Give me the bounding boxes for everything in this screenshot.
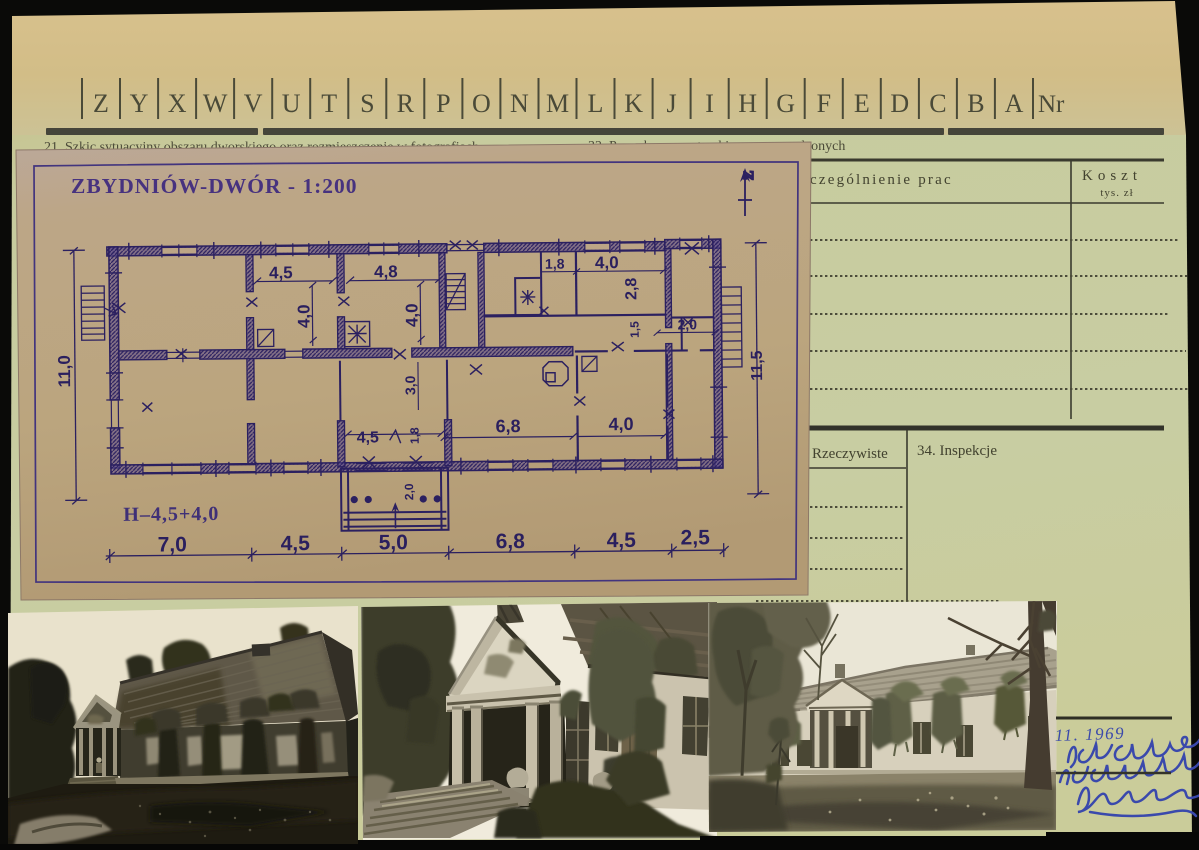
svg-text:1,5: 1,5 (628, 321, 642, 338)
svg-text:T: T (321, 89, 337, 118)
svg-text:4,8: 4,8 (374, 262, 398, 281)
svg-text:11,0: 11,0 (55, 355, 74, 387)
svg-text:H: H (738, 89, 757, 118)
svg-text:2,5: 2,5 (681, 526, 711, 549)
svg-text:K: K (624, 89, 643, 118)
svg-text:Y: Y (130, 89, 149, 118)
svg-text:N: N (510, 89, 529, 118)
svg-text:P: P (436, 89, 450, 118)
svg-text:I: I (705, 89, 714, 118)
svg-text:tys. zł: tys. zł (1100, 187, 1133, 199)
svg-text:4,0: 4,0 (595, 253, 619, 272)
svg-text:3,0: 3,0 (402, 375, 418, 395)
svg-text:4,5: 4,5 (281, 532, 311, 555)
svg-text:F: F (817, 89, 831, 118)
svg-text:1,8: 1,8 (408, 427, 422, 444)
svg-text:ZBYDNIÓW-DWÓR - 1:200: ZBYDNIÓW-DWÓR - 1:200 (71, 174, 358, 198)
svg-text:34. Inspekcje: 34. Inspekcje (917, 443, 997, 459)
svg-text:4,5: 4,5 (269, 263, 293, 282)
svg-text:Rzeczywiste: Rzeczywiste (812, 446, 888, 462)
svg-text:Nr: Nr (1038, 91, 1065, 118)
svg-text:B: B (967, 89, 984, 118)
svg-text:Z: Z (742, 171, 757, 180)
svg-text:6,8: 6,8 (496, 530, 526, 553)
svg-text:M: M (546, 89, 569, 118)
svg-text:2,0: 2,0 (402, 483, 416, 500)
svg-text:U: U (282, 89, 301, 118)
svg-text:C: C (929, 89, 946, 118)
svg-text:11,5: 11,5 (749, 350, 766, 381)
svg-text:6,8: 6,8 (495, 416, 520, 436)
svg-text:7,0: 7,0 (158, 533, 187, 556)
svg-text:E: E (854, 89, 870, 118)
svg-text:2,8: 2,8 (623, 278, 640, 301)
svg-text:11. 1969: 11. 1969 (1054, 724, 1125, 745)
svg-text:Koszt: Koszt (1082, 168, 1142, 184)
svg-text:5,0: 5,0 (379, 531, 408, 554)
svg-text:4,0: 4,0 (608, 414, 633, 434)
svg-text:V: V (244, 89, 263, 118)
svg-text:1,8: 1,8 (545, 256, 565, 272)
svg-text:A: A (1005, 89, 1024, 118)
svg-text:J: J (667, 89, 677, 118)
svg-text:Z: Z (93, 89, 109, 118)
svg-text:R: R (397, 89, 415, 118)
svg-text:4,5: 4,5 (607, 529, 637, 552)
svg-text:O: O (472, 89, 491, 118)
svg-text:4,0: 4,0 (402, 303, 421, 327)
svg-text:2,0: 2,0 (677, 316, 697, 332)
svg-text:G: G (776, 89, 795, 118)
svg-text:4,5: 4,5 (357, 429, 380, 446)
svg-text:H–4,5+4,0: H–4,5+4,0 (123, 503, 219, 526)
svg-text:D: D (890, 89, 909, 118)
svg-text:L: L (588, 89, 604, 118)
svg-text:4,0: 4,0 (294, 304, 313, 328)
svg-text:X: X (168, 89, 187, 118)
svg-text:W: W (203, 89, 228, 118)
svg-text:S: S (360, 89, 374, 118)
